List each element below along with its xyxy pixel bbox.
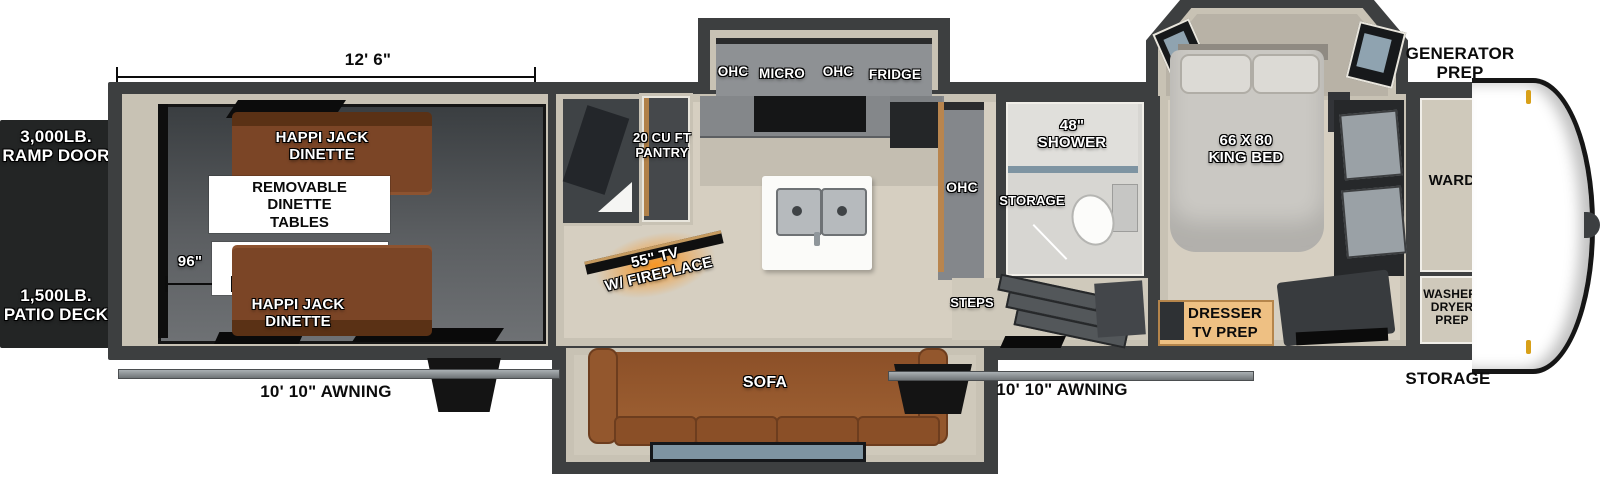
- faucet: [814, 232, 820, 246]
- steps-landing: [1094, 280, 1146, 337]
- pillow-right: [1252, 54, 1320, 94]
- wardrobe-mirror-bottom: [1341, 186, 1407, 259]
- awning-rear-bar: [118, 369, 560, 379]
- ohc-left-label: OHC: [709, 64, 757, 80]
- sofa-cushion-4: [857, 416, 940, 446]
- dresser-tv-prep-label: DRESSER TV PREP: [1160, 305, 1290, 343]
- marker-light-bottom: [1526, 340, 1531, 354]
- generator-prep-label: GENERATOR PREP: [1392, 44, 1528, 82]
- removable-tables-label: REMOVABLE DINETTE TABLES: [209, 176, 390, 233]
- hitch-pin: [1584, 212, 1600, 238]
- storage-front-label: STORAGE: [1396, 369, 1500, 388]
- ramp-door-label: 3,000LB. RAMP DOOR: [2, 127, 110, 165]
- fifth-wheel-floorplan: 3,000LB. RAMP DOOR 1,500LB. PATIO DECK 1…: [0, 0, 1600, 481]
- garage-width-label: 96": [168, 254, 212, 270]
- garage-length-label: 12' 6": [318, 50, 418, 69]
- pantry-label: 20 CU FT PANTRY: [627, 131, 697, 161]
- dinette-rear-label: HAPPI JACK DINETTE: [218, 297, 378, 331]
- pillow-left: [1180, 54, 1252, 94]
- king-bed-label: 66 X 80 KING BED: [1186, 133, 1306, 167]
- steps-label: STEPS: [944, 296, 1000, 311]
- shower-glass: [1008, 166, 1138, 173]
- marker-light-top: [1526, 90, 1531, 104]
- front-cap: [1472, 78, 1595, 374]
- awning-rear-label: 10' 10" AWNING: [226, 382, 426, 401]
- micro-label: MICRO: [752, 66, 812, 81]
- shower-label: 48" SHOWER: [1012, 118, 1132, 152]
- patio-deck-label: 1,500LB. PATIO DECK: [2, 286, 110, 324]
- cooktop: [754, 96, 866, 132]
- garage-width-tick-left: [165, 276, 168, 292]
- fridge-body: [890, 96, 942, 148]
- sofa-slide-window: [650, 442, 866, 462]
- awning-main-label: 10' 10" AWNING: [960, 380, 1164, 399]
- wardrobe-mirror-top: [1339, 110, 1403, 181]
- sink-drain-left: [792, 206, 802, 216]
- ramp-door-frame: [158, 104, 168, 338]
- ohc-right-label: OHC: [814, 64, 862, 80]
- sofa-label: SOFA: [705, 374, 825, 392]
- toilet-tank: [1112, 184, 1138, 232]
- ohc-island-label: OHC: [940, 180, 984, 196]
- garage-length-dimension-line: [117, 76, 536, 78]
- fridge-label: FRIDGE: [862, 67, 928, 82]
- bathroom-storage-label: STORAGE: [993, 194, 1071, 210]
- dinette-front-label: HAPPI JACK DINETTE: [242, 130, 402, 164]
- sink-drain-right: [837, 206, 847, 216]
- stabilizer-rear: [424, 358, 504, 412]
- kitchen-bottom-window: [1000, 336, 1066, 348]
